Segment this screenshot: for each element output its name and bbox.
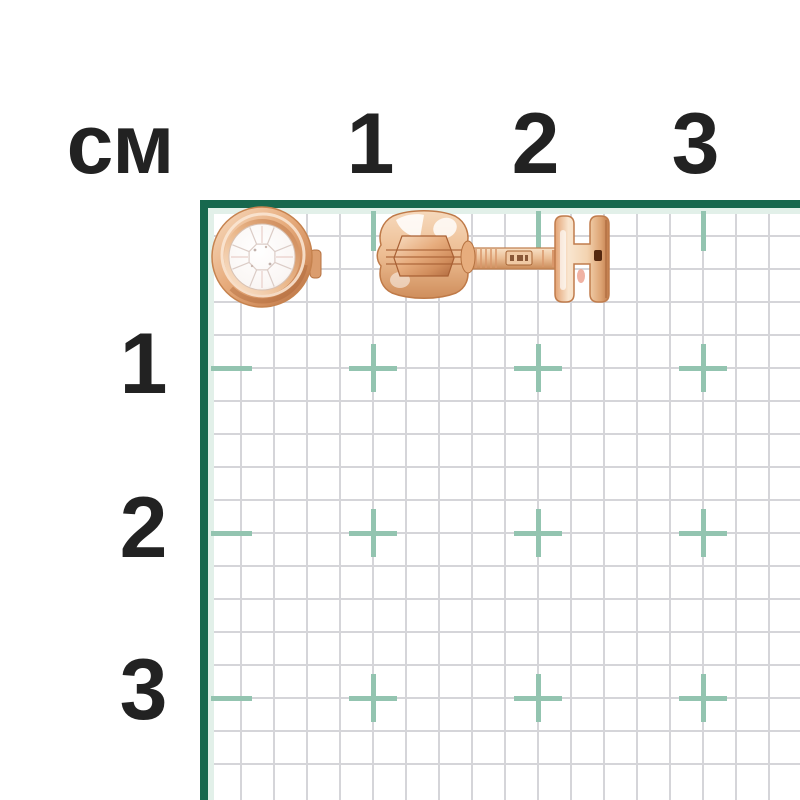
- earring-post: [462, 248, 560, 269]
- left-tick-1: 1: [93, 314, 193, 414]
- earring-front-view-icon: [212, 207, 321, 307]
- top-tick-2: 2: [485, 94, 585, 194]
- earring-side-view-icon: [377, 211, 609, 302]
- earring-product-image: [200, 200, 800, 800]
- measurement-photo-canvas: см 1 2 3 1 2 3: [0, 0, 800, 800]
- left-tick-3: 3: [93, 640, 193, 740]
- earring-back-fastener: [555, 216, 609, 302]
- ruler-unit-label: см: [55, 94, 185, 194]
- top-tick-3: 3: [645, 94, 745, 194]
- earring-screw-nut: [377, 211, 475, 299]
- left-tick-2: 2: [93, 478, 193, 578]
- top-tick-1: 1: [320, 94, 420, 194]
